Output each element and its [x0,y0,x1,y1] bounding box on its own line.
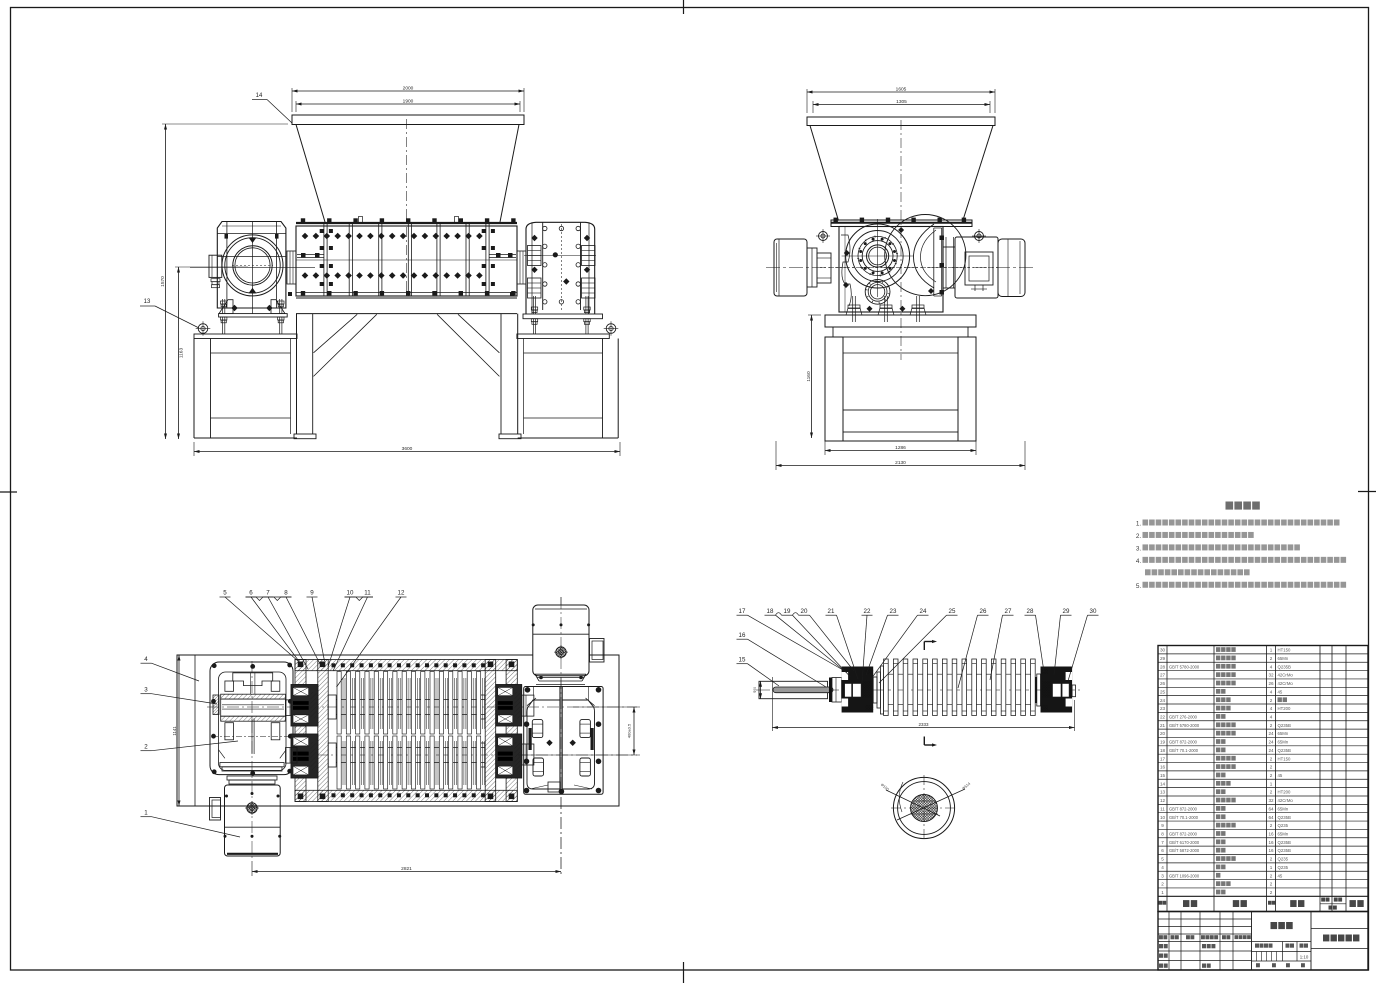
svg-text:32: 32 [1268,673,1274,678]
svg-text:2: 2 [1270,790,1273,795]
svg-text:4: 4 [1270,664,1273,669]
svg-text:1160: 1160 [806,371,812,382]
svg-text:Q235B: Q235B [1278,748,1292,753]
svg-text:65Mn: 65Mn [1278,656,1289,661]
svg-text:2: 2 [1270,823,1273,828]
svg-text:30: 30 [1160,648,1166,653]
svg-text:3600: 3600 [402,446,413,452]
svg-text:7: 7 [1161,840,1164,845]
svg-text:GB/T 872-2000: GB/T 872-2000 [1169,832,1198,837]
svg-text:29: 29 [1160,656,1166,661]
svg-text:GB/T 1096-2000: GB/T 1096-2000 [1169,873,1200,878]
svg-text:16: 16 [1268,848,1274,853]
svg-text:16: 16 [1268,832,1274,837]
svg-text:GB/T 872-2000: GB/T 872-2000 [1169,740,1198,745]
svg-text:4: 4 [1161,865,1164,870]
svg-text:13: 13 [1160,790,1166,795]
svg-text:Q235: Q235 [1278,865,1289,870]
svg-text:2: 2 [1270,773,1273,778]
svg-text:16: 16 [739,632,746,639]
svg-text:3: 3 [144,687,148,694]
svg-text:19: 19 [1160,740,1166,745]
svg-text:26: 26 [1268,681,1274,686]
svg-text:2: 2 [1270,698,1273,703]
svg-text:2: 2 [1270,723,1273,728]
svg-text:12: 12 [1160,798,1166,803]
svg-text:2: 2 [1270,656,1273,661]
svg-text:Q235B: Q235B [1278,840,1292,845]
svg-text:2: 2 [1270,857,1273,862]
svg-text:4: 4 [1270,706,1273,711]
svg-text:2: 2 [1270,873,1273,878]
svg-text:HT150: HT150 [1278,648,1292,653]
svg-text:1286: 1286 [895,445,906,451]
svg-text:GB/T 5872-2000: GB/T 5872-2000 [1169,848,1200,853]
svg-text:24: 24 [1268,731,1274,736]
svg-text:GB/T 872-2000: GB/T 872-2000 [1169,806,1198,811]
svg-text:4: 4 [1270,689,1273,694]
svg-text:HT200: HT200 [1278,706,1292,711]
svg-text:21: 21 [828,608,835,615]
svg-text:14: 14 [256,93,263,99]
svg-text:42CrMo: 42CrMo [1278,673,1294,678]
svg-text:18: 18 [1160,748,1166,753]
svg-text:5.: 5. [1136,583,1142,590]
svg-text:GB/T 70.1-2000: GB/T 70.1-2000 [1169,815,1199,820]
svg-text:65Mn: 65Mn [1278,740,1289,745]
svg-text:4: 4 [1270,714,1273,719]
svg-text:29: 29 [1063,608,1070,615]
svg-text:Q235: Q235 [1278,857,1289,862]
svg-text:2: 2 [1270,756,1273,761]
svg-text:1: 1 [1270,648,1273,653]
svg-text:1141: 1141 [172,726,177,736]
svg-text:64: 64 [1268,815,1274,820]
svg-text:13: 13 [144,299,151,305]
svg-text:Q235: Q235 [1278,823,1289,828]
svg-text:5: 5 [1161,857,1164,862]
svg-text:6: 6 [1161,848,1164,853]
svg-text:7: 7 [266,590,270,597]
svg-text:24: 24 [920,608,927,615]
svg-text:Φ30: Φ30 [753,687,757,693]
svg-text:11: 11 [1160,806,1165,811]
svg-text:2821: 2821 [401,866,412,872]
svg-text:Q235B: Q235B [1278,848,1292,853]
svg-text:17: 17 [1160,756,1166,761]
svg-text:1: 1 [1270,865,1273,870]
svg-text:4: 4 [144,656,148,663]
svg-text:42CrMo: 42CrMo [1278,798,1294,803]
svg-text:23: 23 [890,608,897,615]
svg-text:GB/T 5780-2000: GB/T 5780-2000 [1169,664,1200,669]
svg-text:17: 17 [739,608,746,615]
svg-text:11: 11 [364,590,371,597]
svg-text:4.: 4. [1136,558,1142,565]
svg-text:12: 12 [398,590,405,597]
svg-text:1.: 1. [1136,521,1142,528]
svg-text:26: 26 [980,608,987,615]
svg-text:24: 24 [1160,698,1166,703]
svg-text:16: 16 [1160,765,1166,770]
svg-text:GB/T 70.1-2000: GB/T 70.1-2000 [1169,748,1199,753]
svg-text:2: 2 [144,744,148,751]
svg-text:8: 8 [284,590,288,597]
svg-text:GB/T 6170-2000: GB/T 6170-2000 [1169,840,1200,845]
svg-text:2.: 2. [1136,533,1142,540]
svg-text:30: 30 [1090,608,1097,615]
svg-text:2130: 2130 [895,460,906,466]
svg-text:22: 22 [1160,714,1166,719]
svg-text:1305: 1305 [896,99,907,105]
svg-text:2000: 2000 [403,86,414,92]
svg-text:24: 24 [1268,740,1274,745]
svg-text:3.: 3. [1136,546,1142,553]
svg-text:21: 21 [1160,723,1166,728]
svg-text:10: 10 [347,590,354,597]
svg-text:1570: 1570 [160,276,166,287]
svg-text:400±0.5: 400±0.5 [627,723,632,738]
svg-text:27: 27 [1160,673,1166,678]
svg-text:45: 45 [1278,773,1283,778]
svg-text:65Mn: 65Mn [1278,806,1289,811]
svg-text:1605: 1605 [896,87,907,93]
svg-text:20: 20 [1160,731,1166,736]
svg-text:1: 1 [144,810,148,817]
svg-text:45: 45 [1278,873,1283,878]
svg-text:HT150: HT150 [1278,756,1292,761]
svg-text:15: 15 [1160,773,1166,778]
svg-text:1:10: 1:10 [1300,955,1309,960]
svg-text:1: 1 [1161,890,1164,895]
svg-text:14: 14 [1160,781,1166,786]
svg-text:28: 28 [1160,664,1166,669]
svg-text:25: 25 [1160,689,1166,694]
svg-text:9: 9 [310,590,314,597]
svg-text:2: 2 [1270,882,1273,887]
svg-text:18: 18 [767,608,774,615]
svg-text:26: 26 [1160,681,1166,686]
svg-text:65Mn: 65Mn [1278,832,1289,837]
svg-text:Q235B: Q235B [1278,723,1292,728]
svg-text:6: 6 [249,590,253,597]
svg-text:19: 19 [784,608,791,615]
svg-text:42CrMo: 42CrMo [1278,681,1294,686]
svg-text:2: 2 [1270,890,1273,895]
svg-text:23: 23 [1160,706,1166,711]
svg-text:32: 32 [1268,798,1274,803]
svg-text:3: 3 [1161,873,1164,878]
svg-text:22: 22 [864,608,871,615]
svg-text:2333: 2333 [918,722,929,727]
svg-text:28: 28 [1027,608,1034,615]
svg-text:2: 2 [1270,765,1273,770]
svg-text:1: 1 [1270,781,1273,786]
svg-text:Q235B: Q235B [1278,664,1292,669]
svg-text:27: 27 [1005,608,1012,615]
svg-text:GB/T 276-2000: GB/T 276-2000 [1169,714,1198,719]
svg-text:1163: 1163 [178,348,184,359]
svg-text:25: 25 [949,608,956,615]
svg-text:Q235B: Q235B [1278,815,1292,820]
svg-text:16: 16 [1268,840,1274,845]
svg-text:15: 15 [739,657,746,664]
svg-text:64: 64 [1268,806,1274,811]
svg-text:GB/T 5780-2000: GB/T 5780-2000 [1169,723,1200,728]
svg-text:65Mn: 65Mn [1278,731,1289,736]
svg-text:24: 24 [1268,748,1274,753]
svg-text:10: 10 [1160,815,1166,820]
svg-text:HT200: HT200 [1278,790,1292,795]
svg-text:9: 9 [1161,823,1164,828]
svg-text:8: 8 [1161,832,1164,837]
svg-text:1900: 1900 [403,99,414,105]
svg-text:45: 45 [1278,689,1283,694]
svg-text:2: 2 [1161,882,1164,887]
svg-text:5: 5 [223,590,227,597]
svg-text:20: 20 [801,608,808,615]
